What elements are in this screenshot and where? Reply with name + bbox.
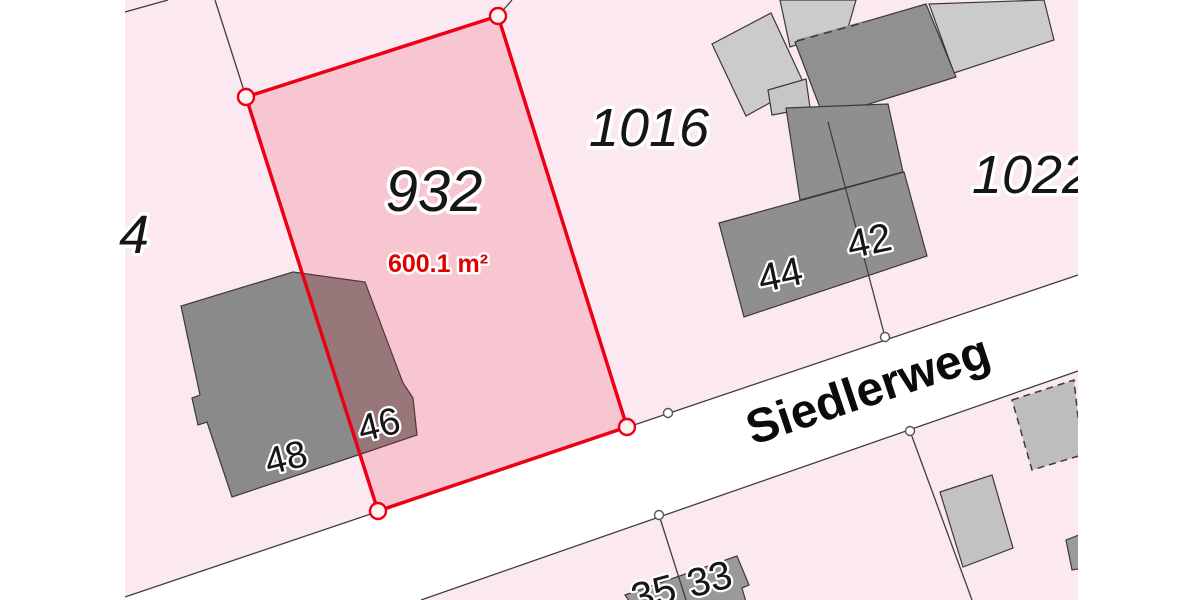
selected-vertex-handle-bottom-left[interactable] bbox=[370, 503, 386, 519]
parcel-number-1022: 1022 bbox=[972, 145, 1092, 205]
cadastral-map-viewport[interactable]: 932 600.1 m² 1016 1022 4 Siedlerweg 48 4… bbox=[0, 0, 1200, 600]
map-canvas[interactable]: 932 600.1 m² 1016 1022 4 Siedlerweg 48 4… bbox=[0, 0, 1200, 600]
boundary-point-marker[interactable] bbox=[906, 427, 915, 436]
parcel-number-1016: 1016 bbox=[589, 98, 710, 158]
house-number-42: 42 bbox=[843, 215, 896, 267]
selected-vertex-handle-top-right[interactable] bbox=[490, 8, 506, 24]
house-number-44: 44 bbox=[754, 249, 807, 301]
parcel-number-4: 4 bbox=[119, 205, 149, 265]
selected-vertex-handle-bottom-right[interactable] bbox=[619, 419, 635, 435]
boundary-point-marker[interactable] bbox=[655, 511, 664, 520]
parcel-number-932: 932 bbox=[386, 159, 483, 224]
boundary-point-marker[interactable] bbox=[881, 333, 890, 342]
boundary-point-marker[interactable] bbox=[664, 409, 673, 418]
selected-vertex-handle-top-left[interactable] bbox=[238, 89, 254, 105]
parcel-area-label: 600.1 m² bbox=[388, 250, 488, 278]
right-white-panel bbox=[1078, 0, 1200, 600]
